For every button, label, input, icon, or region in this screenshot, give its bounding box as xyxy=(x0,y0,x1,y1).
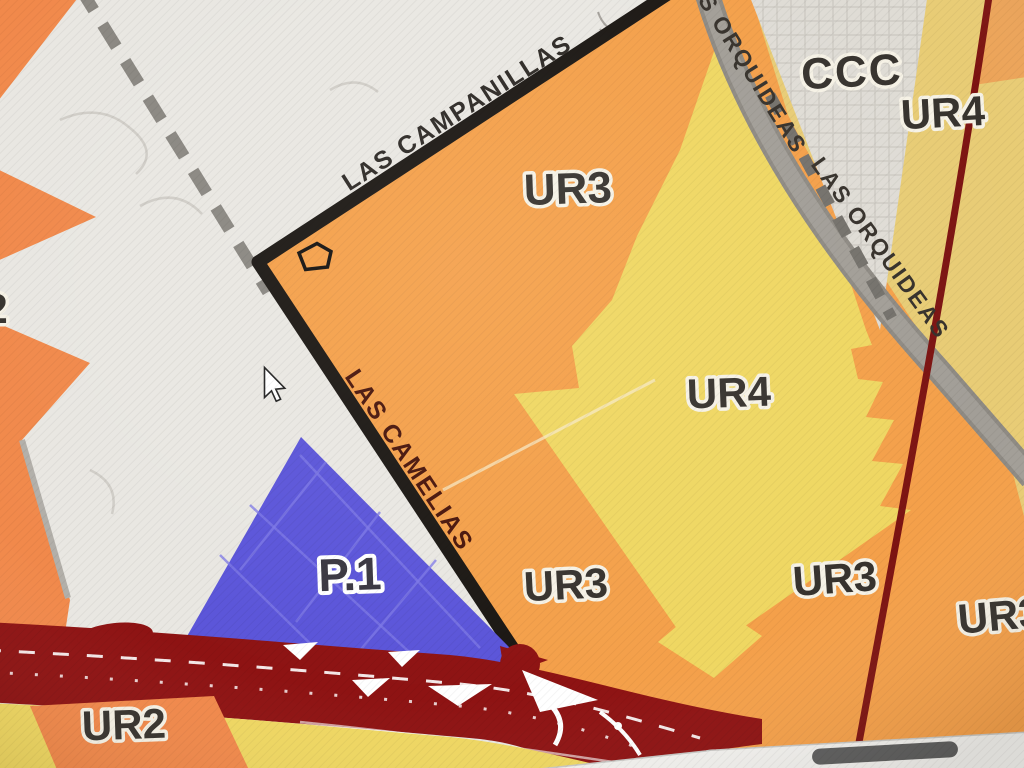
photo-vignette xyxy=(0,0,1024,768)
map-canvas[interactable]: LAS CAMPANILLAS LAS CAMELIAS LAS ORQUIDE… xyxy=(0,0,1024,768)
